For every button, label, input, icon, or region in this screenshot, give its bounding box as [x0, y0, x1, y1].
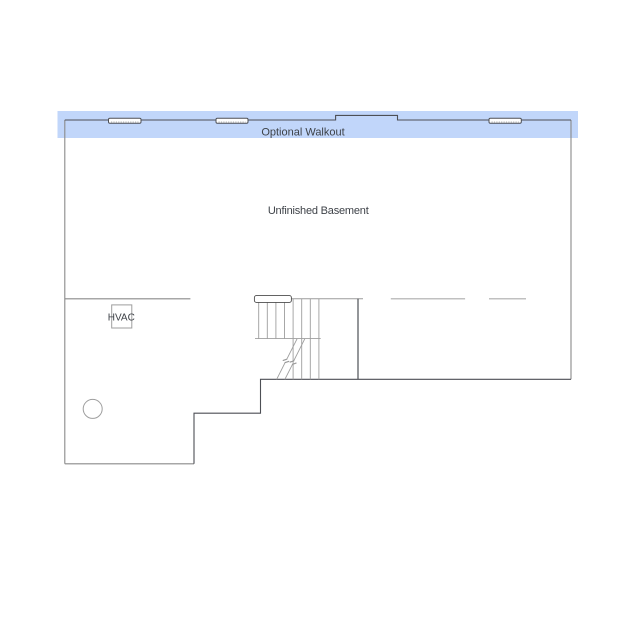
svg-text:Optional Walkout: Optional Walkout: [261, 127, 344, 139]
svg-text:Unfinished Basement: Unfinished Basement: [268, 205, 369, 217]
svg-text:HVAC: HVAC: [108, 313, 135, 324]
